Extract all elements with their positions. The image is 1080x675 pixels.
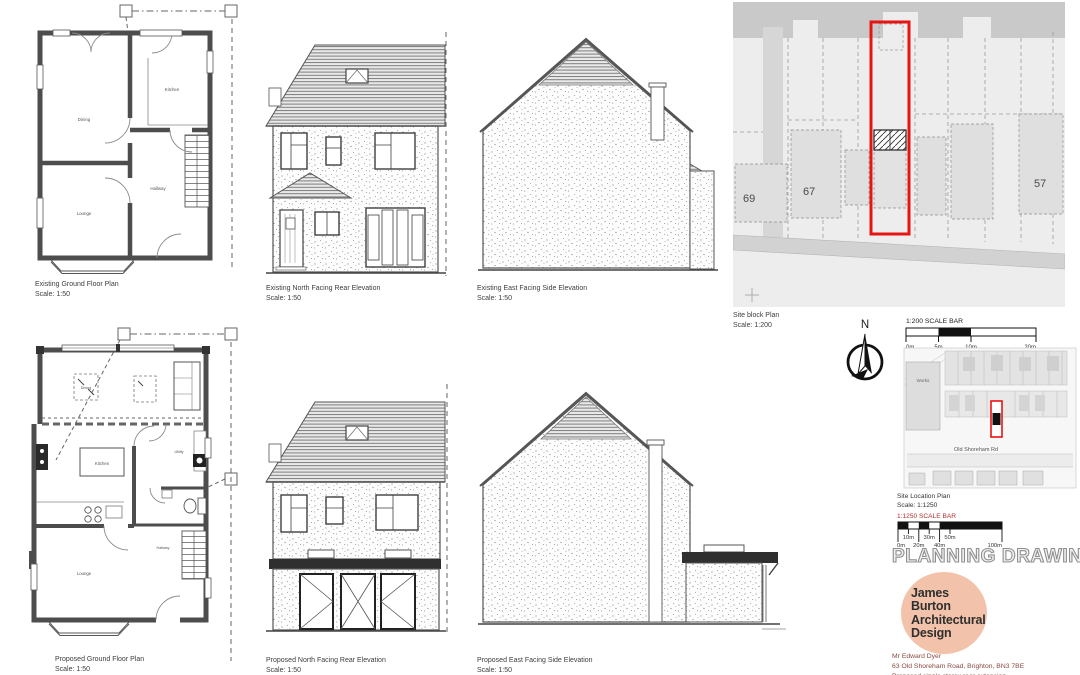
dining-furniture	[74, 362, 200, 410]
proposed-rear-caption: Proposed North Facing Rear Elevation Sca…	[266, 656, 386, 675]
proposed-rear-elevation-drawing	[258, 382, 453, 650]
roof-window	[346, 69, 368, 83]
section-markers	[56, 328, 237, 661]
middle-terrace	[945, 391, 1067, 417]
rear-extension	[682, 545, 778, 622]
house-number-69: 69	[743, 193, 755, 205]
logo-line-3: Design	[911, 627, 987, 640]
existing-ground-floor-plan-drawing: Dining Kitchen Hallway Lounge	[20, 3, 245, 278]
sofa	[174, 362, 200, 410]
kitchen-fixtures	[36, 444, 124, 522]
site-location-map: Works Old Shoreham Rd	[903, 347, 1077, 489]
existing-rear-elevation-drawing	[258, 30, 453, 280]
flue-stack	[647, 440, 664, 622]
project-info: Mr Edward Dyer 63 Old Shoreham Road, Bri…	[892, 652, 1024, 675]
caption-title: Proposed North Facing Rear Elevation	[266, 656, 386, 666]
planning-drawing-sheet: Dining Kitchen Hallway Lounge	[0, 0, 1080, 675]
proposed-extension-hatched	[874, 130, 906, 150]
caption-title: Existing East Facing Side Elevation	[477, 284, 587, 294]
toilet	[184, 499, 196, 513]
site-block-plan-caption: Site block Plan Scale: 1:200	[733, 311, 779, 331]
bay-window	[48, 621, 130, 636]
extension-wall	[686, 563, 762, 622]
logo-line-2: Architectural	[911, 614, 987, 627]
upper-terrace	[945, 351, 1067, 385]
logo-line-1: James Burton	[911, 587, 987, 614]
works-label: Works	[917, 378, 930, 383]
tick-30m: 30m	[924, 535, 935, 541]
caption-scale: Scale: 1:200	[733, 321, 779, 331]
caption-scale: Scale: 1:50	[477, 294, 587, 304]
planning-drawing-stamp: PLANNING DRAWING	[892, 546, 1080, 568]
scale-bar-1250-title: 1:1250 SCALE BAR	[897, 513, 956, 520]
works-block: Works	[906, 362, 940, 430]
room-label-kitchen: Kitchen	[95, 461, 110, 466]
bifold-doors	[300, 574, 415, 629]
caption-scale: Scale: 1:50	[266, 666, 386, 675]
compass-needle-light	[858, 334, 865, 374]
client-name: Mr Edward Dyer	[892, 652, 1024, 662]
extension-fascia	[269, 559, 441, 569]
caption-scale: Scale: 1:50	[477, 666, 593, 675]
roof	[266, 45, 445, 126]
room-labels: Dining Kitchen Utility Hallway Lounge	[77, 386, 184, 576]
extension-rear-glazing	[62, 344, 174, 352]
site-location-plan-scale: Scale: 1:1250	[897, 502, 938, 509]
james-burton-logo: James Burton Architectural Design	[901, 572, 987, 654]
site-block-plan-map: 69 67 57	[733, 2, 1065, 307]
caption-scale: Scale: 1:50	[55, 665, 144, 675]
caption-title: Existing Ground Floor Plan	[35, 280, 119, 290]
application-site-marker	[991, 401, 1002, 437]
site-address: 63 Old Shoreham Road, Brighton, BN3 7BE	[892, 662, 1024, 672]
plan-stairs	[182, 531, 206, 579]
roof-chimney-block	[269, 444, 281, 462]
room-label-hallway: Hallway	[157, 546, 170, 550]
bay-window	[50, 259, 135, 274]
kitchen-sink	[106, 506, 122, 518]
existing-side-elevation-drawing	[468, 28, 718, 280]
caption-title: Site block Plan	[733, 311, 779, 321]
scale-bar-200-title: 1:200 SCALE BAR	[906, 318, 963, 325]
chimney	[649, 83, 666, 140]
hob	[85, 507, 101, 522]
roof	[266, 402, 445, 482]
room-label-lounge: Lounge	[77, 571, 92, 576]
utility-fixtures	[193, 431, 206, 471]
caption-title: Proposed Ground Floor Plan	[55, 655, 144, 665]
room-label-hallway: Hallway	[150, 186, 166, 191]
caption-scale: Scale: 1:50	[35, 290, 119, 300]
side-wing	[690, 164, 714, 269]
proposed-side-caption: Proposed East Facing Side Elevation Scal…	[477, 656, 593, 675]
caption-scale: Scale: 1:50	[266, 294, 380, 304]
proposed-plan-caption: Proposed Ground Floor Plan Scale: 1:50	[55, 655, 144, 675]
logo-text: James Burton Architectural Design	[901, 572, 987, 640]
road-label: Old Shoreham Rd	[954, 447, 998, 453]
gutter-drip	[769, 563, 778, 575]
scale-bar-1250: Site Location Plan Scale: 1:1250 1:1250 …	[897, 490, 1080, 550]
extension-fascia	[682, 552, 778, 563]
section-markers	[120, 5, 237, 271]
house-number-57: 57	[1034, 178, 1046, 190]
wc-basin	[162, 490, 172, 498]
door-step	[276, 267, 306, 270]
existing-rear-caption: Existing North Facing Rear Elevation Sca…	[266, 284, 380, 304]
structural-opening-beam	[42, 418, 204, 424]
room-label-dining: Dining	[78, 117, 91, 122]
wc-fixtures	[162, 490, 206, 514]
house-number-67: 67	[803, 186, 815, 198]
roof-face	[539, 42, 633, 85]
compass-needle-dark	[865, 334, 872, 374]
range-cooker	[36, 444, 48, 470]
room-label-dining: Dining	[81, 386, 91, 390]
room-label-lounge: Lounge	[77, 211, 92, 216]
caption-title: Proposed East Facing Side Elevation	[477, 656, 593, 666]
north-label: N	[861, 319, 869, 331]
existing-side-caption: Existing East Facing Side Elevation Scal…	[477, 284, 587, 304]
application-house	[874, 150, 906, 208]
downpipe	[763, 565, 766, 622]
plan-walls	[40, 33, 210, 258]
roof-face	[541, 397, 631, 439]
extension-rooflight	[704, 545, 744, 552]
tick-50m: 50m	[944, 535, 955, 541]
proposed-ground-floor-plan-drawing: Dining Kitchen Utility Hallway Lounge	[16, 326, 256, 666]
room-label-utility: Utility	[174, 450, 183, 454]
roof-chimney-block	[269, 88, 281, 106]
tick-10m: 10m	[903, 535, 914, 541]
site-location-plan-title: Site Location Plan	[897, 493, 950, 500]
proposed-side-elevation-drawing	[468, 382, 788, 650]
room-label-kitchen: Kitchen	[165, 87, 180, 92]
plan-stairs	[185, 135, 209, 207]
roof-window	[346, 426, 368, 440]
north-compass: N	[842, 316, 888, 394]
caption-title: Existing North Facing Rear Elevation	[266, 284, 380, 294]
existing-plan-caption: Existing Ground Floor Plan Scale: 1:50	[35, 280, 119, 300]
main-road	[907, 454, 1073, 467]
